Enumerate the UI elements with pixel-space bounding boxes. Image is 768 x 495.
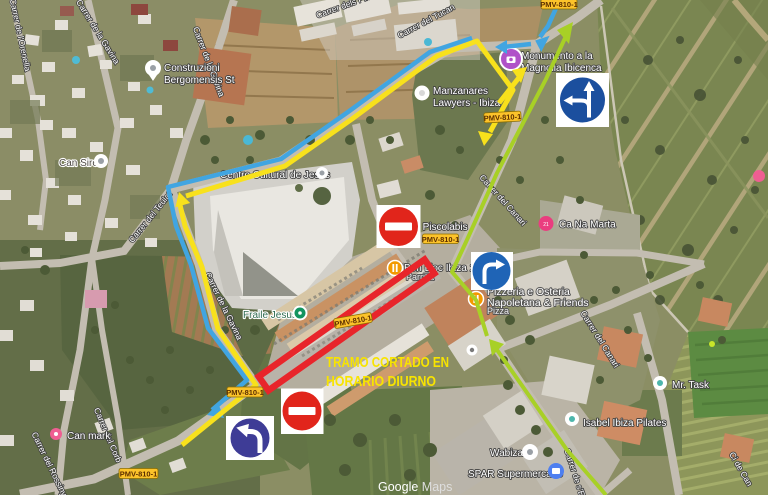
svg-text:Lawyers - Ibiza: Lawyers - Ibiza bbox=[433, 98, 501, 109]
svg-text:Bergomensis St: Bergomensis St bbox=[164, 75, 235, 86]
svg-text:Isabel Ibiza Pilates: Isabel Ibiza Pilates bbox=[583, 418, 666, 429]
svg-text:Manzanares: Manzanares bbox=[433, 86, 488, 97]
svg-text:HORARIO DIURNO: HORARIO DIURNO bbox=[326, 374, 436, 390]
svg-text:PMV-810-1: PMV-810-1 bbox=[226, 388, 264, 397]
svg-text:Mr. Task: Mr. Task bbox=[672, 380, 710, 391]
svg-text:Fraile Jesus: Fraile Jesus bbox=[243, 310, 297, 321]
svg-text:Wabiza: Wabiza bbox=[490, 448, 523, 459]
svg-text:Construzioni: Construzioni bbox=[164, 63, 220, 74]
svg-text:Ca Na Marta: Ca Na Marta bbox=[559, 220, 616, 231]
svg-text:TRAMO CORTADO EN: TRAMO CORTADO EN bbox=[326, 355, 449, 371]
svg-text:21: 21 bbox=[543, 222, 549, 228]
svg-text:PMV-810-1: PMV-810-1 bbox=[540, 0, 578, 9]
svg-text:Google Maps: Google Maps bbox=[378, 480, 452, 494]
svg-text:Can mark: Can mark bbox=[67, 431, 111, 442]
svg-text:Can Sire: Can Sire bbox=[59, 158, 98, 169]
svg-text:PMV-810-1: PMV-810-1 bbox=[120, 470, 158, 479]
svg-text:PMV-810-1: PMV-810-1 bbox=[422, 235, 460, 244]
svg-text:Magnolia Ibicenca: Magnolia Ibicenca bbox=[521, 63, 602, 74]
svg-text:Pizza: Pizza bbox=[487, 306, 509, 316]
